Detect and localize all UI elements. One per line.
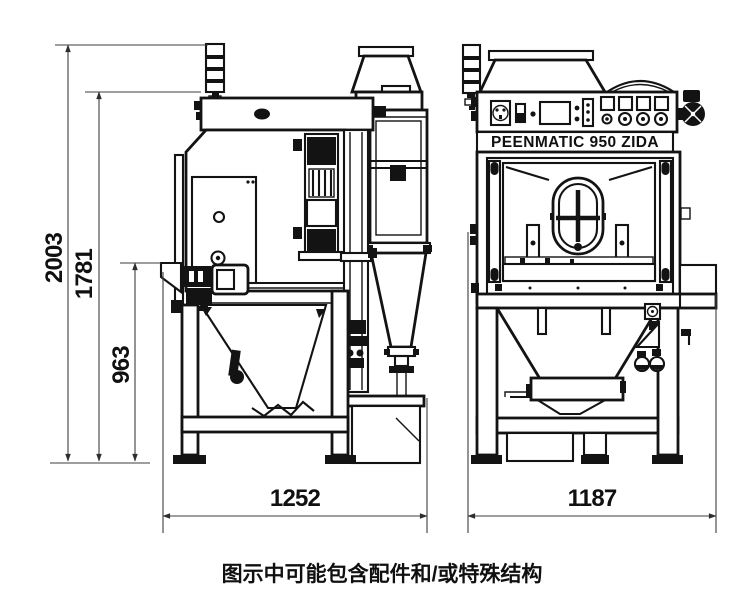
exhaust-fan-motor bbox=[676, 90, 705, 126]
dim-label-side-depth: 1252 bbox=[270, 485, 321, 512]
control-panel bbox=[471, 92, 677, 132]
top-beam bbox=[194, 98, 386, 130]
dimension-hopper-height: 963 bbox=[108, 263, 161, 461]
drain-hook bbox=[681, 329, 691, 345]
drawer-tray bbox=[526, 378, 626, 400]
name-plate: PEENMATIC 950 ZIDA bbox=[477, 132, 673, 152]
media-container bbox=[347, 396, 424, 463]
dim-label-hopper-height: 963 bbox=[108, 346, 135, 384]
front-view-drawing: PEENMATIC 950 ZIDA bbox=[463, 45, 716, 464]
technical-drawing-page: PEENMATIC 950 ZIDA bbox=[0, 0, 756, 603]
dim-label-overall-height: 2003 bbox=[41, 232, 68, 283]
drawing-canvas: PEENMATIC 950 ZIDA bbox=[0, 0, 756, 603]
work-sill bbox=[503, 257, 655, 281]
porthole-window bbox=[550, 178, 606, 254]
signal-lamp-side bbox=[206, 44, 224, 100]
dim-label-body-height: 1781 bbox=[71, 248, 98, 299]
brand-label: PEENMATIC 950 ZIDA bbox=[491, 134, 659, 151]
side-view-drawing bbox=[161, 44, 432, 464]
hopper-side bbox=[201, 305, 326, 416]
top-hood bbox=[480, 51, 605, 92]
figure-caption: 图示中可能包含配件和/或特殊结构 bbox=[222, 562, 543, 586]
dim-label-front-width: 1187 bbox=[568, 485, 617, 512]
caster-wheels bbox=[635, 349, 664, 371]
top-dome bbox=[607, 81, 674, 92]
